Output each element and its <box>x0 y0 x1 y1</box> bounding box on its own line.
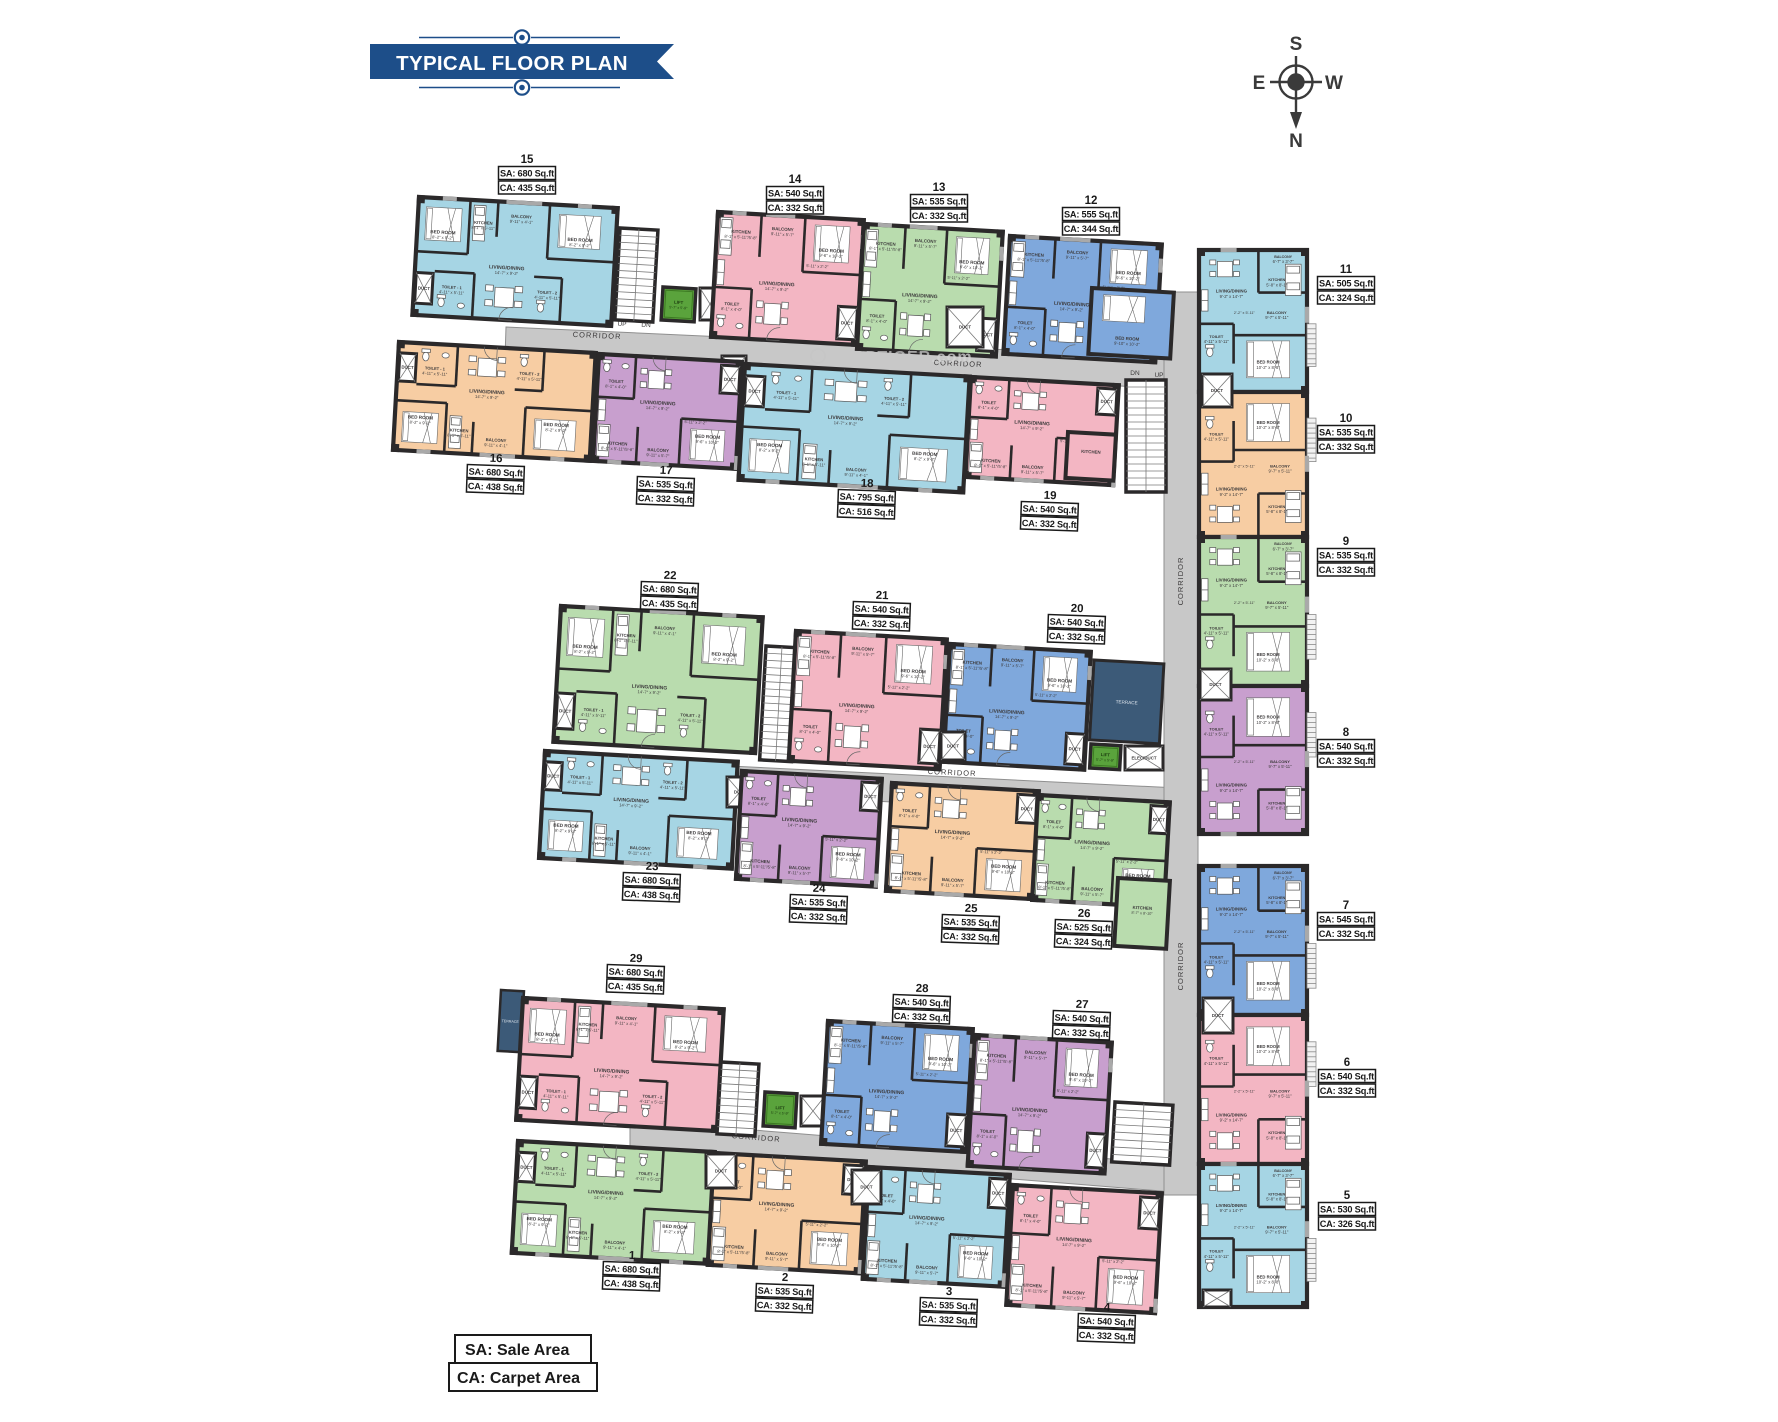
svg-text:SA: 535 Sq.ft: SA: 535 Sq.ft <box>912 197 966 207</box>
svg-text:21: 21 <box>876 590 890 602</box>
svg-text:CA: 324 Sq.ft: CA: 324 Sq.ft <box>1319 293 1374 303</box>
svg-text:CA: 435 Sq.ft: CA: 435 Sq.ft <box>642 598 697 610</box>
svg-text:CA: 435 Sq.ft: CA: 435 Sq.ft <box>608 981 663 993</box>
svg-text:CA: 332 Sq.ft: CA: 332 Sq.ft <box>921 1314 976 1326</box>
svg-text:5'-8" x 8'-1": 5'-8" x 8'-1" <box>1266 806 1288 811</box>
svg-text:CA: 332 Sq.ft: CA: 332 Sq.ft <box>1319 756 1374 766</box>
svg-text:SA: 535 Sq.ft: SA: 535 Sq.ft <box>921 1300 976 1312</box>
svg-text:SA: 680 Sq.ft: SA: 680 Sq.ft <box>642 584 697 596</box>
svg-text:CA: 332 Sq.ft: CA: 332 Sq.ft <box>854 618 909 630</box>
svg-text:2'-2" x 5'-11": 2'-2" x 5'-11" <box>1234 760 1256 764</box>
svg-text:DUCT: DUCT <box>559 708 572 714</box>
svg-text:DUCT: DUCT <box>724 377 737 383</box>
svg-text:SA: 540 Sq.ft: SA: 540 Sq.ft <box>1054 1013 1109 1025</box>
svg-text:CA: Carpet Area: CA: Carpet Area <box>457 1370 580 1387</box>
svg-text:CA: 332 Sq.ft: CA: 332 Sq.ft <box>791 911 846 923</box>
svg-text:DUCT: DUCT <box>418 285 431 291</box>
svg-text:2'-2" x 5'-11": 2'-2" x 5'-11" <box>1234 601 1256 605</box>
svg-text:DUCT: DUCT <box>547 773 560 779</box>
svg-text:SA: 795 Sq.ft: SA: 795 Sq.ft <box>839 492 894 504</box>
svg-text:9'-7" x 5'-11": 9'-7" x 5'-11" <box>1265 934 1289 939</box>
svg-text:6'-7" x 3'-7": 6'-7" x 3'-7" <box>1273 546 1295 551</box>
svg-text:DUCT: DUCT <box>1209 682 1222 687</box>
svg-text:CA: 332 Sq.ft: CA: 332 Sq.ft <box>1320 1086 1375 1096</box>
svg-text:9'-7" x 5'-11": 9'-7" x 5'-11" <box>1265 605 1289 610</box>
svg-text:CORRIDOR: CORRIDOR <box>1176 557 1185 606</box>
svg-text:4'-11" x 5'-11": 4'-11" x 5'-11" <box>1204 1061 1230 1066</box>
svg-text:2'-2" x 5'-11": 2'-2" x 5'-11" <box>1234 311 1256 315</box>
svg-text:8: 8 <box>1343 727 1350 739</box>
svg-text:SA: 530 Sq.ft: SA: 530 Sq.ft <box>1320 1205 1374 1215</box>
svg-text:9'-2" x 14'-7": 9'-2" x 14'-7" <box>1220 583 1244 588</box>
svg-text:DUCT: DUCT <box>1021 806 1034 812</box>
svg-text:2'-2" x 5'-11": 2'-2" x 5'-11" <box>1234 1225 1256 1229</box>
svg-text:9'-2" x 14'-7": 9'-2" x 14'-7" <box>1220 294 1244 299</box>
svg-text:S: S <box>1290 34 1303 55</box>
svg-text:SA: 540 Sq.ft: SA: 540 Sq.ft <box>1049 617 1104 629</box>
svg-text:DUCT: DUCT <box>1153 817 1166 823</box>
svg-text:5'-8" x 8'-1": 5'-8" x 8'-1" <box>1266 571 1288 576</box>
svg-text:SA: 535 Sq.ft: SA: 535 Sq.ft <box>791 897 846 909</box>
svg-text:DUCT: DUCT <box>841 320 854 326</box>
svg-text:10'-2" x 8'-8": 10'-2" x 8'-8" <box>1256 1049 1280 1054</box>
svg-text:5'-8" x 8'-1": 5'-8" x 8'-1" <box>1266 900 1288 905</box>
svg-text:CA: 332 Sq.ft: CA: 332 Sq.ft <box>1319 565 1374 575</box>
svg-text:6'-7" x 3'-7": 6'-7" x 3'-7" <box>1273 1173 1295 1178</box>
svg-text:10'-2" x 8'-8": 10'-2" x 8'-8" <box>1256 986 1280 991</box>
svg-text:1: 1 <box>629 1250 636 1262</box>
svg-text:15: 15 <box>521 154 534 166</box>
svg-text:11: 11 <box>1340 264 1353 276</box>
svg-text:16: 16 <box>490 453 503 465</box>
svg-text:CA: 326 Sq.ft: CA: 326 Sq.ft <box>1320 1219 1375 1229</box>
svg-text:10'-2" x 8'-8": 10'-2" x 8'-8" <box>1256 365 1280 370</box>
svg-text:5'-8" x 8'-1": 5'-8" x 8'-1" <box>1266 1135 1288 1140</box>
svg-text:DUCT: DUCT <box>1211 388 1224 393</box>
svg-text:24: 24 <box>813 883 827 895</box>
svg-text:28: 28 <box>916 983 930 995</box>
svg-text:17: 17 <box>660 465 673 477</box>
svg-text:SA: 545 Sq.ft: SA: 545 Sq.ft <box>1319 915 1373 925</box>
svg-text:CA: 435 Sq.ft: CA: 435 Sq.ft <box>500 183 555 193</box>
svg-text:9: 9 <box>1343 536 1349 548</box>
svg-text:6: 6 <box>1344 1057 1350 1069</box>
svg-text:W: W <box>1325 73 1343 94</box>
svg-text:4'-11" x 5'-11": 4'-11" x 5'-11" <box>1204 437 1230 442</box>
svg-text:SA: 540 Sq.ft: SA: 540 Sq.ft <box>1022 504 1077 516</box>
svg-text:SA: 680 Sq.ft: SA: 680 Sq.ft <box>500 169 554 179</box>
svg-text:9'-2" x 14'-7": 9'-2" x 14'-7" <box>1220 1118 1244 1123</box>
svg-text:DUCT: DUCT <box>864 794 877 800</box>
svg-text:DUCT: DUCT <box>1143 1210 1156 1216</box>
svg-text:ELEC/DUCT: ELEC/DUCT <box>1131 756 1156 761</box>
svg-text:SA: 525 Sq.ft: SA: 525 Sq.ft <box>1056 922 1111 934</box>
svg-text:SA: 680 Sq.ft: SA: 680 Sq.ft <box>608 967 663 979</box>
svg-text:13: 13 <box>933 182 946 194</box>
svg-text:DUCT: DUCT <box>1069 746 1082 752</box>
svg-text:9'-2" x 14'-7": 9'-2" x 14'-7" <box>1220 1208 1244 1213</box>
svg-text:5'-8" x 8'-1": 5'-8" x 8'-1" <box>1266 509 1288 514</box>
svg-text:CA: 332 Sq.ft: CA: 332 Sq.ft <box>757 1300 812 1312</box>
svg-text:DUCT: DUCT <box>947 744 960 749</box>
svg-text:CA: 332 Sq.ft: CA: 332 Sq.ft <box>1022 518 1077 530</box>
svg-text:LIFT: LIFT <box>1101 752 1111 758</box>
svg-text:9'-7" x 5'-11": 9'-7" x 5'-11" <box>1268 764 1292 769</box>
svg-text:25: 25 <box>965 903 979 915</box>
svg-text:CA: 324 Sq.ft: CA: 324 Sq.ft <box>1056 936 1111 948</box>
svg-text:E: E <box>1253 73 1266 94</box>
svg-text:LIFT: LIFT <box>775 1105 785 1111</box>
svg-text:4'-11" x 5'-11": 4'-11" x 5'-11" <box>1204 1254 1230 1259</box>
svg-text:CA: 438 Sq.ft: CA: 438 Sq.ft <box>624 889 679 901</box>
svg-text:CA: 438 Sq.ft: CA: 438 Sq.ft <box>468 481 523 493</box>
svg-text:DUCT: DUCT <box>992 1190 1005 1196</box>
svg-text:10'-2" x 8'-8": 10'-2" x 8'-8" <box>1256 657 1280 662</box>
svg-text:9'-7" x 5'-11": 9'-7" x 5'-11" <box>1265 1230 1289 1235</box>
svg-text:19: 19 <box>1044 490 1057 502</box>
svg-text:DUCT: DUCT <box>520 1164 533 1170</box>
svg-text:4'-11" x 5'-11": 4'-11" x 5'-11" <box>1204 960 1230 965</box>
svg-text:CORRIDOR: CORRIDOR <box>1176 942 1185 991</box>
svg-text:TYPICAL FLOOR PLAN: TYPICAL FLOOR PLAN <box>396 52 628 75</box>
svg-text:4: 4 <box>1104 1302 1111 1314</box>
svg-text:4'-11" x 5'-11": 4'-11" x 5'-11" <box>1204 631 1230 636</box>
svg-text:27: 27 <box>1076 999 1089 1011</box>
svg-text:SA: 535 Sq.ft: SA: 535 Sq.ft <box>757 1286 812 1298</box>
svg-text:7: 7 <box>1343 900 1349 912</box>
svg-text:DUCT: DUCT <box>522 1089 535 1095</box>
svg-text:4'-11" x 5'-11": 4'-11" x 5'-11" <box>1204 339 1230 344</box>
svg-text:DUCT: DUCT <box>748 388 761 394</box>
svg-text:9'-7" x 5'-11": 9'-7" x 5'-11" <box>1265 315 1289 320</box>
svg-text:SA: 540 Sq.ft: SA: 540 Sq.ft <box>1079 1316 1134 1328</box>
svg-text:23: 23 <box>646 861 659 873</box>
svg-text:9'-7" x 5'-11": 9'-7" x 5'-11" <box>1268 469 1292 474</box>
svg-text:CA: 332 Sq.ft: CA: 332 Sq.ft <box>912 211 967 221</box>
svg-text:SA: 680 Sq.ft: SA: 680 Sq.ft <box>604 1264 659 1276</box>
svg-text:CA: 516 Sq.ft: CA: 516 Sq.ft <box>839 506 894 518</box>
svg-text:2'-2" x 5'-11": 2'-2" x 5'-11" <box>1234 464 1256 468</box>
svg-text:22: 22 <box>664 570 677 582</box>
svg-text:DUCT: DUCT <box>1212 1013 1225 1018</box>
svg-text:20: 20 <box>1071 603 1084 615</box>
svg-text:DUCT: DUCT <box>923 744 936 750</box>
svg-text:CA: 332 Sq.ft: CA: 332 Sq.ft <box>638 493 693 505</box>
svg-text:5'-8" x 8'-1": 5'-8" x 8'-1" <box>1266 1197 1288 1202</box>
svg-text:12: 12 <box>1085 195 1098 207</box>
svg-text:CA: 332 Sq.ft: CA: 332 Sq.ft <box>768 203 823 213</box>
svg-text:9'-2" x 14'-7": 9'-2" x 14'-7" <box>1220 788 1244 793</box>
svg-text:29: 29 <box>630 953 643 965</box>
svg-text:2'-2" x 5'-11": 2'-2" x 5'-11" <box>1234 930 1256 934</box>
svg-text:PROPTIGER.com: PROPTIGER.com <box>828 349 973 366</box>
svg-text:14: 14 <box>789 174 802 186</box>
svg-text:2: 2 <box>782 1272 789 1284</box>
svg-text:18: 18 <box>861 478 875 490</box>
svg-text:3: 3 <box>946 1286 953 1298</box>
svg-text:DUCT: DUCT <box>1089 1148 1102 1154</box>
svg-text:4'-11" x 5'-11": 4'-11" x 5'-11" <box>1204 732 1230 737</box>
svg-text:CA: 332 Sq.ft: CA: 332 Sq.ft <box>1049 631 1104 643</box>
svg-text:26: 26 <box>1078 908 1091 920</box>
svg-text:DUCT: DUCT <box>860 1185 873 1190</box>
svg-text:SA: 535 Sq.ft: SA: 535 Sq.ft <box>1319 428 1373 438</box>
svg-text:CA: 332 Sq.ft: CA: 332 Sq.ft <box>1319 929 1374 939</box>
svg-text:9'-2" x 14'-7": 9'-2" x 14'-7" <box>1220 912 1244 917</box>
svg-text:DN: DN <box>1130 370 1140 377</box>
svg-text:CA: 332 Sq.ft: CA: 332 Sq.ft <box>943 931 998 943</box>
svg-text:CA: 332 Sq.ft: CA: 332 Sq.ft <box>1079 1330 1134 1342</box>
svg-text:5: 5 <box>1344 1190 1351 1202</box>
svg-text:DUCT: DUCT <box>950 1128 963 1134</box>
svg-text:10: 10 <box>1340 413 1353 425</box>
svg-text:SA: 535 Sq.ft: SA: 535 Sq.ft <box>943 917 998 929</box>
svg-text:SA: 540 Sq.ft: SA: 540 Sq.ft <box>1320 1072 1374 1082</box>
svg-text:9'-7" x 5'-11": 9'-7" x 5'-11" <box>1268 1094 1292 1099</box>
svg-text:10'-2" x 8'-8": 10'-2" x 8'-8" <box>1256 1280 1280 1285</box>
svg-text:CA: 438 Sq.ft: CA: 438 Sq.ft <box>604 1278 659 1290</box>
svg-text:6'-7" x 3'-7": 6'-7" x 3'-7" <box>1273 875 1295 880</box>
svg-text:6'-7" x 3'-7": 6'-7" x 3'-7" <box>1273 259 1295 264</box>
svg-text:SA: 680 Sq.ft: SA: 680 Sq.ft <box>624 875 679 887</box>
svg-text:SA: Sale Area: SA: Sale Area <box>465 1342 569 1359</box>
svg-text:SA: 555 Sq.ft: SA: 555 Sq.ft <box>1064 210 1118 220</box>
svg-text:5'-8" x 8'-1": 5'-8" x 8'-1" <box>1266 282 1288 287</box>
svg-text:DUCT: DUCT <box>401 364 414 370</box>
svg-text:DUCT: DUCT <box>1101 399 1114 405</box>
svg-text:SA: 535 Sq.ft: SA: 535 Sq.ft <box>1319 551 1373 561</box>
svg-text:UP: UP <box>1154 372 1163 379</box>
svg-text:DUCT: DUCT <box>959 325 972 330</box>
svg-text:10'-2" x 8'-8": 10'-2" x 8'-8" <box>1256 720 1280 725</box>
svg-text:SA: 540 Sq.ft: SA: 540 Sq.ft <box>1319 742 1373 752</box>
svg-text:CA: 332 Sq.ft: CA: 332 Sq.ft <box>894 1011 949 1023</box>
svg-text:DUCT: DUCT <box>715 1169 728 1174</box>
svg-text:SA: 535 Sq.ft: SA: 535 Sq.ft <box>638 479 693 491</box>
svg-text:SA: 540 Sq.ft: SA: 540 Sq.ft <box>854 604 909 616</box>
svg-text:2'-2" x 5'-11": 2'-2" x 5'-11" <box>1234 1090 1256 1094</box>
svg-text:LIFT: LIFT <box>674 300 684 306</box>
svg-text:N: N <box>1289 131 1303 152</box>
svg-text:SA: 680 Sq.ft: SA: 680 Sq.ft <box>468 467 523 479</box>
svg-text:CA: 332 Sq.ft: CA: 332 Sq.ft <box>1319 442 1374 452</box>
svg-text:SA: 540 Sq.ft: SA: 540 Sq.ft <box>894 997 949 1009</box>
svg-text:9'-2" x 14'-7": 9'-2" x 14'-7" <box>1220 492 1244 497</box>
svg-text:CA: 344 Sq.ft: CA: 344 Sq.ft <box>1064 224 1119 234</box>
svg-text:CA: 332 Sq.ft: CA: 332 Sq.ft <box>1054 1027 1109 1039</box>
svg-text:SA: 540 Sq.ft: SA: 540 Sq.ft <box>768 189 822 199</box>
svg-text:10'-2" x 8'-8": 10'-2" x 8'-8" <box>1256 425 1280 430</box>
svg-text:SA: 505 Sq.ft: SA: 505 Sq.ft <box>1319 279 1373 289</box>
